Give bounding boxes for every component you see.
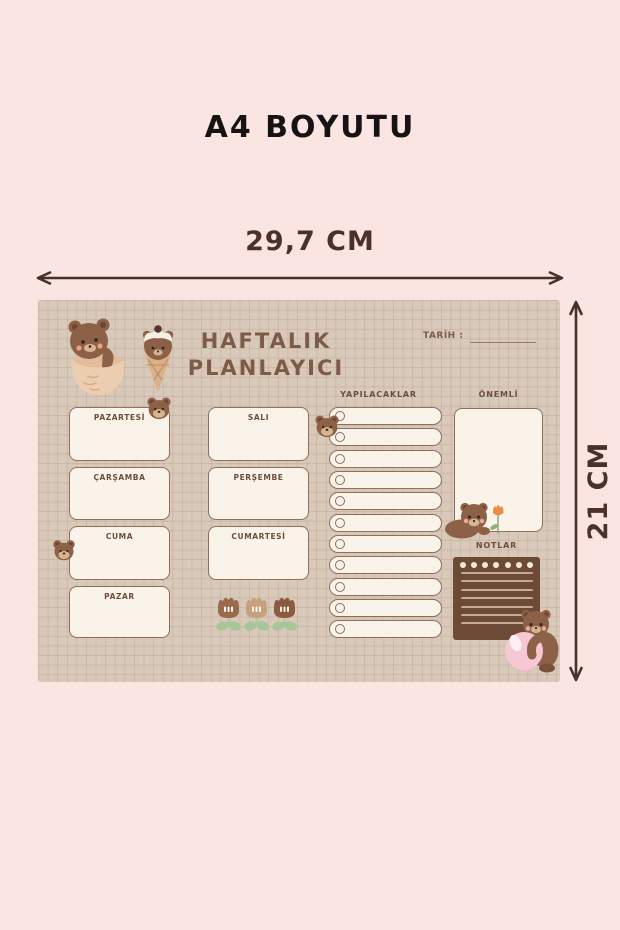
- important-header: ÖNEMLİ: [454, 390, 543, 399]
- todo-checkbox-circle: [335, 560, 345, 570]
- todo-row: [329, 578, 442, 596]
- notepad-hole: [471, 562, 477, 568]
- notepad-hole: [505, 562, 511, 568]
- page-title: A4 BOYUTU: [0, 110, 620, 145]
- todo-checkbox-circle: [335, 582, 345, 592]
- tulip-icon: [243, 594, 270, 634]
- todo-row: [329, 407, 442, 425]
- bear-with-flower-icon: [444, 499, 506, 539]
- width-double-arrow-icon: [32, 270, 568, 286]
- ice-cream-bear-icon: [135, 323, 181, 397]
- day-card-carsamba: ÇARŞAMBA: [69, 467, 170, 520]
- tulip-icon: [215, 594, 242, 634]
- day-card-label: ÇARŞAMBA: [70, 473, 169, 482]
- notepad-line: [461, 580, 533, 582]
- bear-head-sticker-icon: [146, 395, 172, 421]
- notepad-line: [461, 597, 533, 599]
- todo-row: [329, 599, 442, 617]
- day-card-cuma: CUMA: [69, 526, 170, 580]
- day-card-pazar: PAZAR: [69, 586, 170, 638]
- todo-checkbox-circle: [335, 454, 345, 464]
- width-dimension-label: 29,7 CM: [0, 226, 620, 257]
- day-card-label: SALI: [209, 413, 308, 422]
- todo-row: [329, 535, 442, 553]
- todo-header: YAPILACAKLAR: [322, 390, 435, 399]
- todo-checkbox-circle: [335, 539, 345, 549]
- bear-in-cup-icon: [58, 314, 136, 402]
- product-size-graphic: A4 BOYUTU 29,7 CM 21 CM: [0, 0, 620, 930]
- todo-row: [329, 492, 442, 510]
- planner-title: HAFTALIK PLANLAYICI: [156, 328, 376, 382]
- notes-header: NOTLAR: [453, 541, 540, 550]
- day-card-label: CUMARTESİ: [209, 532, 308, 541]
- day-card-persembe: PERŞEMBE: [208, 467, 309, 520]
- notepad-line: [461, 589, 533, 591]
- height-double-arrow-icon: [568, 296, 584, 686]
- todo-row: [329, 514, 442, 532]
- todo-checkbox-circle: [335, 603, 345, 613]
- tulip-row: [215, 594, 298, 634]
- bear-head-sticker-icon: [314, 413, 340, 439]
- planner-sheet: HAFTALIK PLANLAYICI TARİH : YAPILACAKLAR…: [38, 300, 560, 682]
- tulip-icon: [271, 594, 298, 634]
- todo-list: [329, 407, 442, 642]
- todo-checkbox-circle: [335, 624, 345, 634]
- notepad-line: [461, 572, 533, 574]
- planner-title-line2: PLANLAYICI: [156, 355, 376, 382]
- day-card-sali: SALI: [208, 407, 309, 461]
- todo-row: [329, 556, 442, 574]
- notepad-hole: [527, 562, 533, 568]
- todo-checkbox-circle: [335, 518, 345, 528]
- bear-head-sticker-icon: [52, 538, 76, 562]
- todo-checkbox-circle: [335, 475, 345, 485]
- notepad-hole: [482, 562, 488, 568]
- date-blank-line: [470, 342, 536, 343]
- bear-with-balloon-icon: [502, 608, 562, 674]
- day-card-cumartesi: CUMARTESİ: [208, 526, 309, 580]
- notepad-hole: [516, 562, 522, 568]
- day-card-label: PAZAR: [70, 592, 169, 601]
- todo-row: [329, 620, 442, 638]
- todo-row: [329, 471, 442, 489]
- planner-title-line1: HAFTALIK: [156, 328, 376, 355]
- day-card-label: CUMA: [70, 532, 169, 541]
- todo-row: [329, 450, 442, 468]
- day-card-label: PERŞEMBE: [209, 473, 308, 482]
- todo-checkbox-circle: [335, 496, 345, 506]
- todo-row: [329, 428, 442, 446]
- notepad-hole: [460, 562, 466, 568]
- date-label: TARİH :: [423, 331, 463, 341]
- notepad-hole: [493, 562, 499, 568]
- notepad-holes: [453, 557, 540, 568]
